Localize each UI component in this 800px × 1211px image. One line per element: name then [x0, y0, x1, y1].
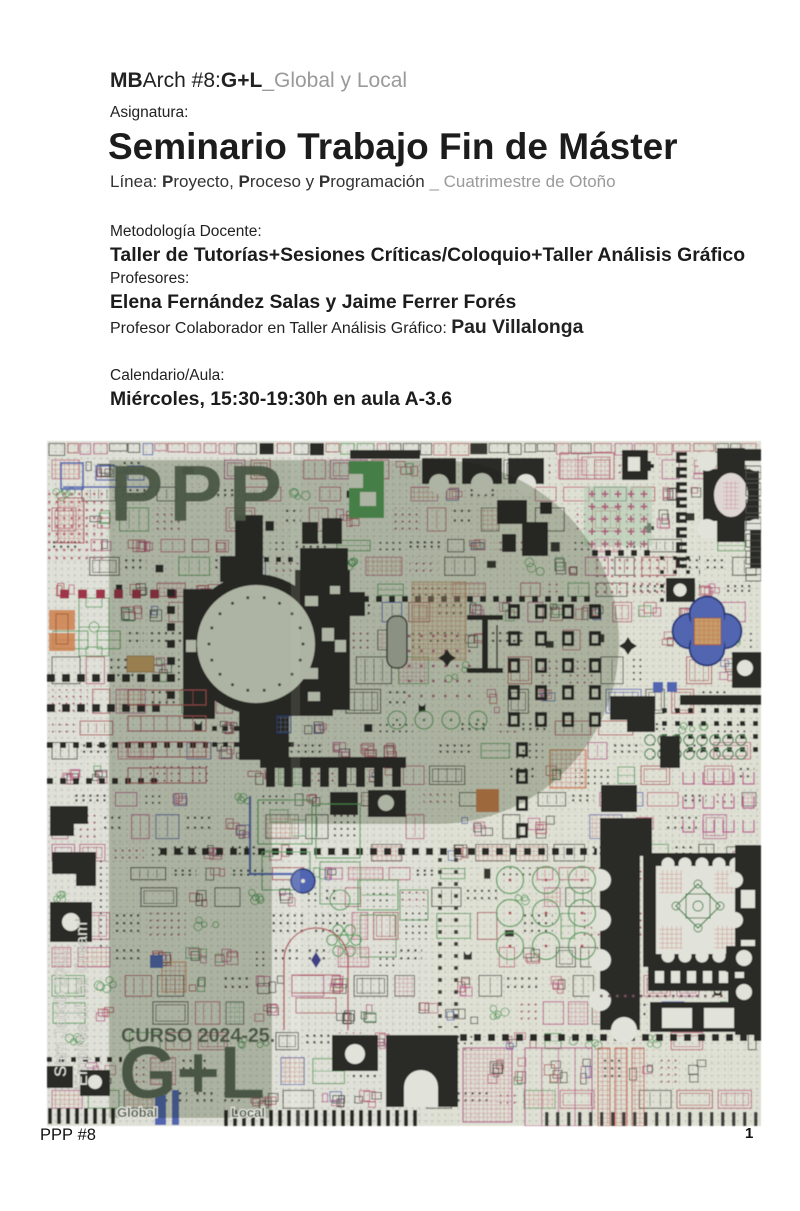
svg-text:PPP: PPP — [110, 449, 288, 538]
svg-text:G+L: G+L — [119, 1031, 265, 1114]
svg-text:Sam Jacob 2011: Sam Jacob 2011 — [51, 951, 70, 1077]
svg-text:‘Empires of Ice Cream’: ‘Empires of Ice Cream’ — [72, 918, 91, 1090]
svg-text:Local: Local — [231, 1105, 265, 1120]
svg-text:Global: Global — [117, 1105, 157, 1120]
